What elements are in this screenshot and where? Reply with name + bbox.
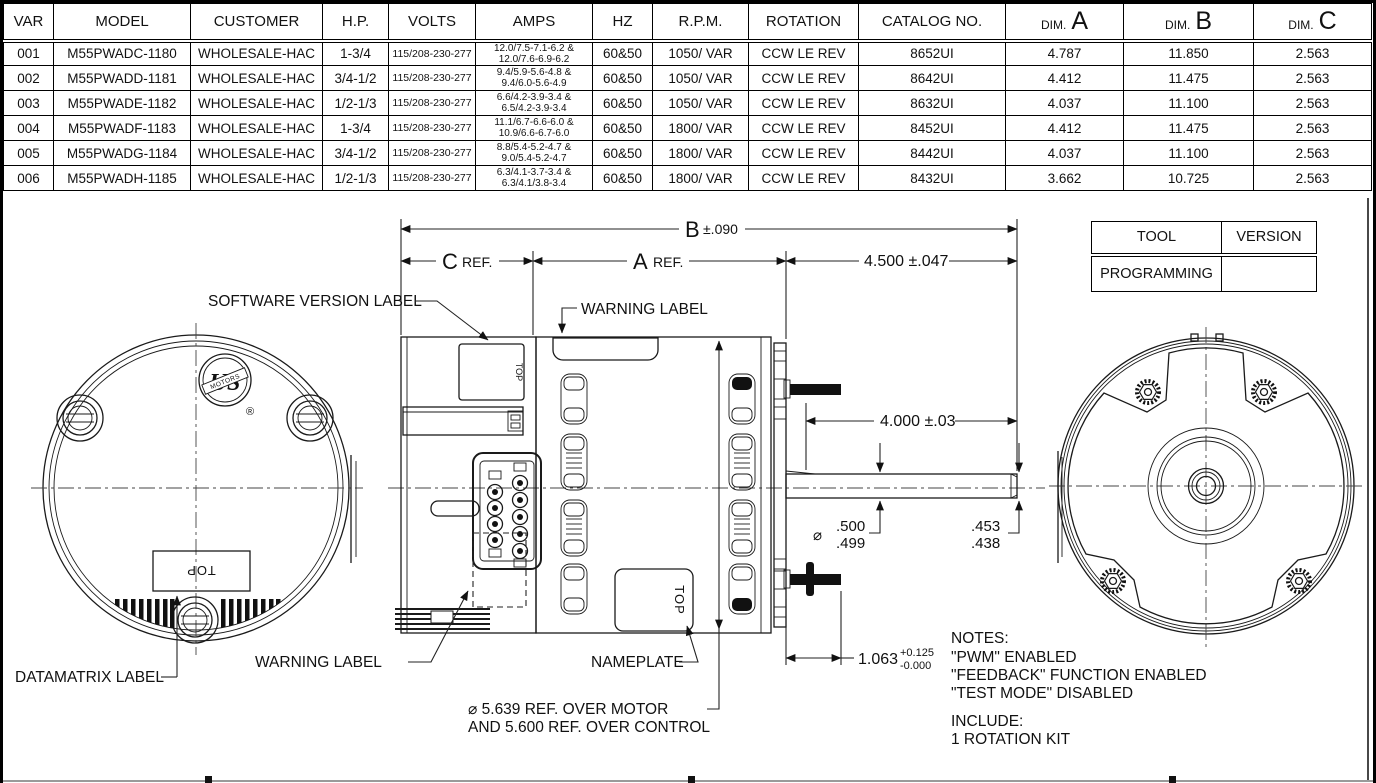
spec-cell: 4.037	[1006, 141, 1124, 166]
spec-cell: 2.563	[1254, 166, 1372, 191]
datamatrix-label: DATAMATRIX LABEL	[15, 669, 164, 686]
spec-table: VARMODELCUSTOMERH.P.VOLTSAMPSHZR.P.M.ROT…	[3, 3, 1372, 191]
warning-label-bottom: WARNING LABEL	[255, 654, 382, 671]
dimension-1063: 1.063 +0.125 -0.000	[786, 591, 934, 672]
shaft-dia-lo: .499	[836, 535, 865, 552]
spec-cell: 1/2-1/3	[323, 91, 389, 116]
spec-cell: M55PWADE-1182	[54, 91, 191, 116]
spec-column-header: VOLTS	[389, 4, 476, 41]
spec-cell: M55PWADH-1185	[54, 166, 191, 191]
body-vents	[561, 374, 755, 614]
shaft-dia-hi: .500	[836, 518, 865, 535]
dim-c-letter: C	[442, 249, 458, 274]
dim-a-suffix: REF.	[653, 254, 683, 270]
spec-cell: 1800/ VAR	[653, 166, 749, 191]
spec-cell: 11.475	[1124, 66, 1254, 91]
spec-cell: 3/4-1/2	[323, 141, 389, 166]
notes-title: NOTES:	[951, 630, 1009, 647]
flat-lo: .438	[971, 535, 1000, 552]
spec-cell: 004	[4, 116, 54, 141]
spec-cell: 1/2-1/3	[323, 166, 389, 191]
spec-cell: WHOLESALE-HAC	[191, 166, 323, 191]
spec-cell: 11.850	[1124, 41, 1254, 66]
dim-b-tol: ±.090	[703, 221, 738, 237]
tool-cell: PROGRAMMING	[1092, 255, 1222, 292]
shaft	[786, 471, 1017, 498]
spec-cell: 115/208-230-277	[389, 66, 476, 91]
spec-cell: 8642UI	[859, 66, 1006, 91]
screw-top-left	[57, 395, 103, 441]
spec-cell: 60&50	[593, 116, 653, 141]
dimension-a-ref: A REF.	[533, 249, 786, 339]
software-version-label: SOFTWARE VERSION LABEL	[208, 293, 422, 310]
spec-column-header: DIM.C	[1254, 4, 1372, 41]
drawing-sheet: VARMODELCUSTOMERH.P.VOLTSAMPSHZR.P.M.ROT…	[0, 0, 1376, 783]
us-motors-logo: US MOTORS ®	[199, 354, 254, 418]
spec-cell: 11.475	[1124, 116, 1254, 141]
note-line: "FEEDBACK" FUNCTION ENABLED	[951, 667, 1207, 684]
top-marking-nameplate: TOP	[672, 585, 687, 615]
note-line: "TEST MODE" DISABLED	[951, 685, 1133, 702]
spec-cell: 60&50	[593, 141, 653, 166]
spec-cell: 1050/ VAR	[653, 66, 749, 91]
spec-cell: CCW LE REV	[749, 41, 859, 66]
spec-cell: 1050/ VAR	[653, 41, 749, 66]
spec-cell: WHOLESALE-HAC	[191, 116, 323, 141]
spec-cell: 4.412	[1006, 116, 1124, 141]
spec-cell: CCW LE REV	[749, 141, 859, 166]
spec-cell: 11.1/6.7-6.6-6.0 & 10.9/6.6-6.7-6.0	[476, 116, 593, 141]
spec-cell: 11.100	[1124, 141, 1254, 166]
spec-column-header: AMPS	[476, 4, 593, 41]
include-title: INCLUDE:	[951, 713, 1023, 730]
dimension-4000: 4.000 ±.03	[806, 403, 1017, 470]
front-view	[1049, 327, 1363, 651]
spec-cell: 8.8/5.4-5.2-4.7 & 9.0/5.4-5.2-4.7	[476, 141, 593, 166]
spec-cell: WHOLESALE-HAC	[191, 66, 323, 91]
stud-len-text: 1.063	[858, 651, 898, 668]
spec-column-header: DIM.A	[1006, 4, 1124, 41]
back-view: US MOTORS ®	[31, 323, 363, 655]
spec-row: 005M55PWADG-1184WHOLESALE-HAC3/4-1/2115/…	[4, 141, 1372, 166]
dimension-c-ref: C REF.	[401, 249, 533, 335]
spec-cell: 2.563	[1254, 91, 1372, 116]
spec-table-header-row: VARMODELCUSTOMERH.P.VOLTSAMPSHZR.P.M.ROT…	[4, 4, 1372, 41]
spec-cell: 3.662	[1006, 166, 1124, 191]
spec-cell: 12.0/7.5-7.1-6.2 & 12.0/7.6-6.9-6.2	[476, 41, 593, 66]
spec-column-header: CATALOG NO.	[859, 4, 1006, 41]
dia-symbol: ⌀	[813, 527, 822, 544]
spec-cell: 1-3/4	[323, 41, 389, 66]
spec-cell: 8442UI	[859, 141, 1006, 166]
dim-c-suffix: REF.	[462, 254, 492, 270]
version-cell	[1222, 255, 1317, 292]
spec-cell: M55PWADG-1184	[54, 141, 191, 166]
spec-cell: 60&50	[593, 91, 653, 116]
spec-cell: 001	[4, 41, 54, 66]
spec-cell: CCW LE REV	[749, 91, 859, 116]
stud-plus-tol: +0.125	[900, 647, 934, 659]
spec-cell: WHOLESALE-HAC	[191, 41, 323, 66]
spec-column-header: VAR	[4, 4, 54, 41]
spec-cell: 60&50	[593, 41, 653, 66]
spec-cell: CCW LE REV	[749, 66, 859, 91]
dim-a-letter: A	[633, 249, 648, 274]
spec-cell: 1-3/4	[323, 116, 389, 141]
dim-b-letter: B	[685, 217, 700, 242]
spec-cell: 2.563	[1254, 141, 1372, 166]
spec-cell: 6.6/4.2-3.9-3.4 & 6.5/4.2-3.9-3.4	[476, 91, 593, 116]
top-marking-back: TOP	[186, 563, 216, 578]
spec-cell: M55PWADC-1180	[54, 41, 191, 66]
spec-column-header: R.P.M.	[653, 4, 749, 41]
note-line: "PWM" ENABLED	[951, 649, 1077, 666]
spec-cell: M55PWADF-1183	[54, 116, 191, 141]
spec-cell: WHOLESALE-HAC	[191, 141, 323, 166]
spec-cell: 1050/ VAR	[653, 91, 749, 116]
control-vents	[395, 609, 490, 629]
flat-hi: .453	[971, 518, 1000, 535]
spec-row: 001M55PWADC-1180WHOLESALE-HAC1-3/4115/20…	[4, 41, 1372, 66]
screw-top-right	[287, 395, 333, 441]
dia-ref-line1: ⌀ 5.639 REF. OVER MOTOR	[468, 701, 668, 718]
motor-body: TOP	[536, 337, 786, 633]
spec-cell: 006	[4, 166, 54, 191]
notes-block: NOTES: "PWM" ENABLED "FEEDBACK" FUNCTION…	[951, 630, 1207, 748]
spec-row: 006M55PWADH-1185WHOLESALE-HAC1/2-1/3115/…	[4, 166, 1372, 191]
spec-cell: 2.563	[1254, 41, 1372, 66]
spec-cell: 1800/ VAR	[653, 141, 749, 166]
spec-cell: 2.563	[1254, 116, 1372, 141]
spec-cell: 11.100	[1124, 91, 1254, 116]
callouts: SOFTWARE VERSION LABEL WARNING LABEL DAT…	[15, 293, 708, 686]
spec-cell: WHOLESALE-HAC	[191, 91, 323, 116]
spec-column-header: CUSTOMER	[191, 4, 323, 41]
spec-cell: 005	[4, 141, 54, 166]
spec-column-header: DIM.B	[1124, 4, 1254, 41]
dimension-4500: 4.500 ±.047	[786, 253, 1017, 270]
version-header: VERSION	[1222, 222, 1317, 255]
spec-cell: CCW LE REV	[749, 116, 859, 141]
spec-cell: 115/208-230-277	[389, 91, 476, 116]
spec-cell: 3/4-1/2	[323, 66, 389, 91]
tool-table: TOOL VERSION PROGRAMMING	[1091, 221, 1317, 292]
spec-column-header: H.P.	[323, 4, 389, 41]
spec-row: 002M55PWADD-1181WHOLESALE-HAC3/4-1/2115/…	[4, 66, 1372, 91]
spec-cell: 4.412	[1006, 66, 1124, 91]
spec-cell: M55PWADD-1181	[54, 66, 191, 91]
spec-cell: 8452UI	[859, 116, 1006, 141]
tool-header: TOOL	[1092, 222, 1222, 255]
spec-row: 004M55PWADF-1183WHOLESALE-HAC1-3/4115/20…	[4, 116, 1372, 141]
spec-row: 003M55PWADE-1182WHOLESALE-HAC1/2-1/3115/…	[4, 91, 1372, 116]
include-line: 1 ROTATION KIT	[951, 731, 1071, 748]
registered-mark: ®	[246, 406, 254, 418]
spec-cell: 1800/ VAR	[653, 116, 749, 141]
spec-cell: 8432UI	[859, 166, 1006, 191]
spec-column-header: ROTATION	[749, 4, 859, 41]
spec-cell: 60&50	[593, 166, 653, 191]
spec-column-header: MODEL	[54, 4, 191, 41]
spec-cell: 115/208-230-277	[389, 41, 476, 66]
spec-cell: 10.725	[1124, 166, 1254, 191]
warning-label-top: WARNING LABEL	[581, 301, 708, 318]
spec-cell: 4.037	[1006, 91, 1124, 116]
top-marking-control: TOP	[514, 363, 524, 381]
screw-bottom	[172, 597, 218, 643]
spec-cell: 115/208-230-277	[389, 166, 476, 191]
connector-block	[473, 453, 541, 569]
spec-cell: 8632UI	[859, 91, 1006, 116]
dim-4500-text: 4.500 ±.047	[864, 253, 949, 270]
spec-cell: 60&50	[593, 66, 653, 91]
spec-column-header: HZ	[593, 4, 653, 41]
spec-cell: 8652UI	[859, 41, 1006, 66]
nameplate-label: NAMEPLATE	[591, 654, 684, 671]
spec-cell: 2.563	[1254, 66, 1372, 91]
spec-cell: 115/208-230-277	[389, 141, 476, 166]
dim-4000-text: 4.000 ±.03	[880, 413, 956, 430]
side-view: TOP	[388, 337, 1045, 633]
spec-cell: 115/208-230-277	[389, 116, 476, 141]
dia-ref-line2: AND 5.600 REF. OVER CONTROL	[468, 719, 710, 736]
spec-cell: 002	[4, 66, 54, 91]
control-section: TOP	[395, 337, 541, 633]
spec-cell: 003	[4, 91, 54, 116]
spec-cell: 4.787	[1006, 41, 1124, 66]
spec-cell: 6.3/4.1-3.7-3.4 & 6.3/4.1/3.8-3.4	[476, 166, 593, 191]
spec-cell: CCW LE REV	[749, 166, 859, 191]
stud-minus-tol: -0.000	[900, 660, 931, 672]
spec-cell: 9.4/5.9-5.6-4.8 & 9.4/6.0-5.6-4.9	[476, 66, 593, 91]
